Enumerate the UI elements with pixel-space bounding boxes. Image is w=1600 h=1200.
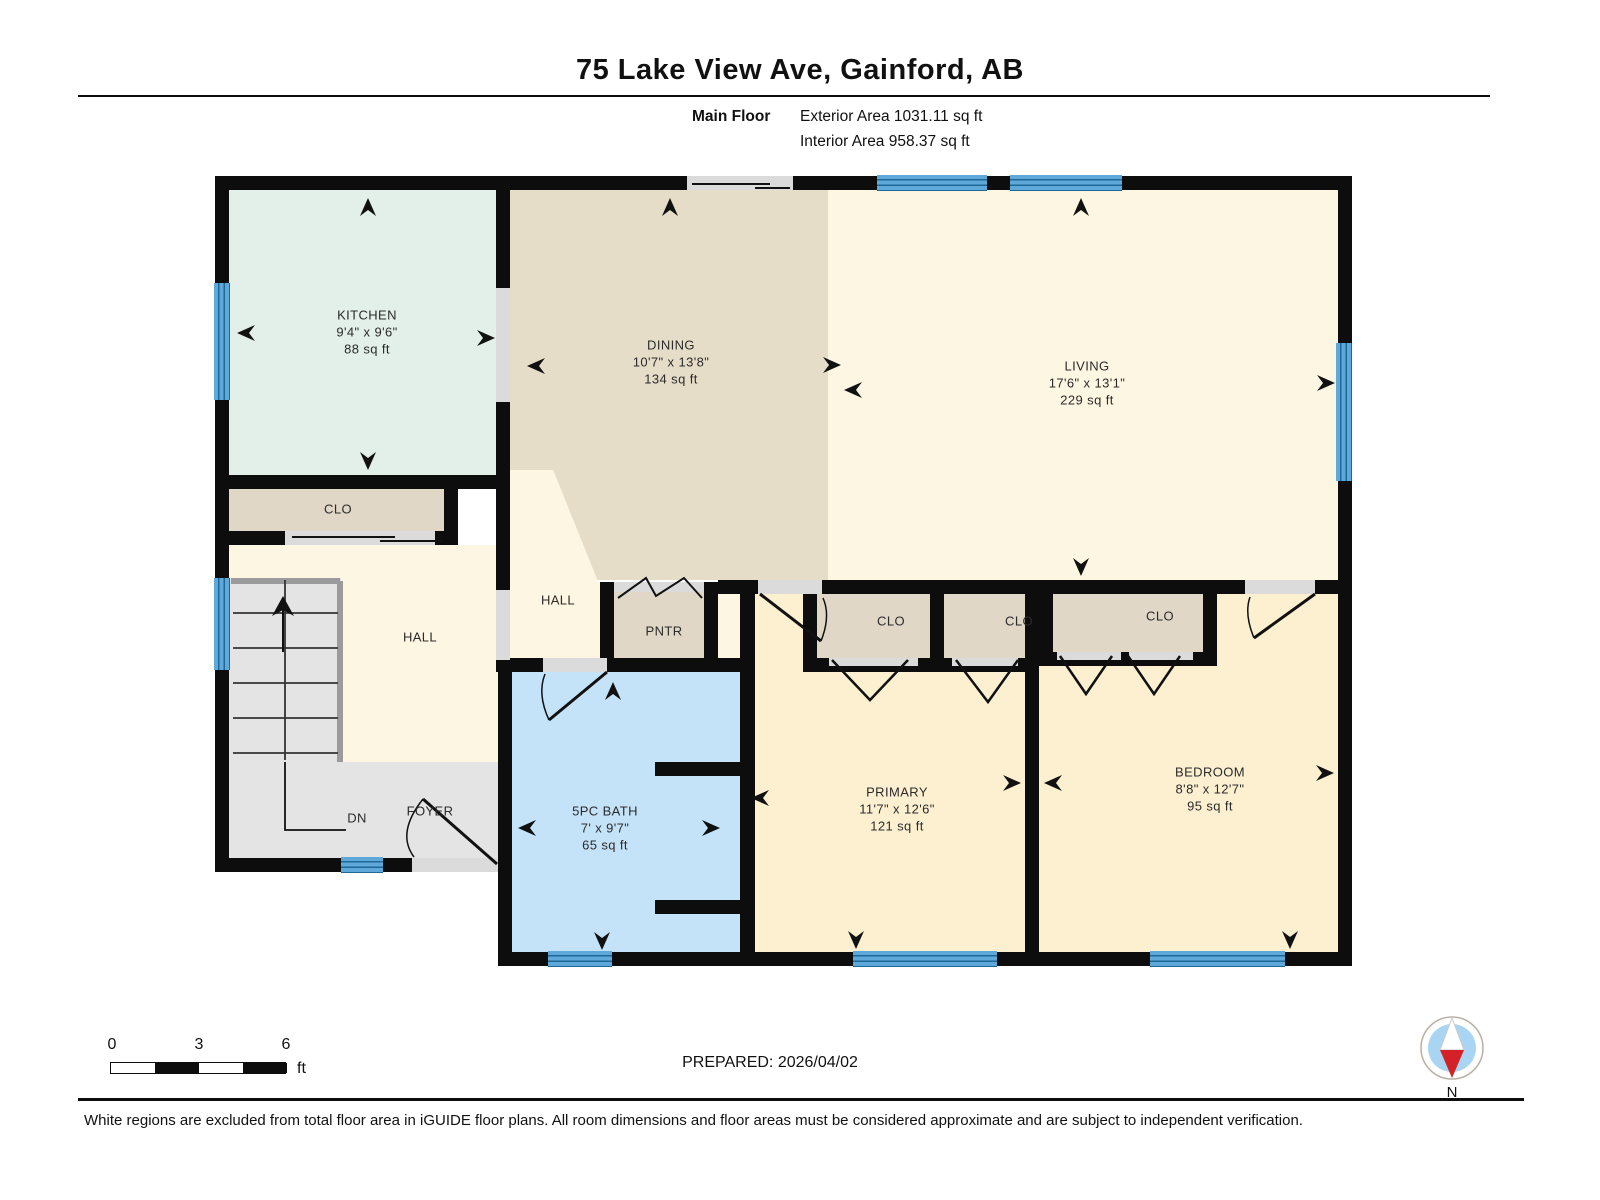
room-area: 65 sq ft xyxy=(572,837,638,854)
label-closet-hall: CLO xyxy=(324,501,352,518)
footer-divider xyxy=(78,1098,1524,1101)
label-bedroom: BEDROOM 8'8" x 12'7" 95 sq ft xyxy=(1175,764,1245,815)
label-living: LIVING 17'6" x 13'1" 229 sq ft xyxy=(1049,358,1126,409)
scale-unit: ft xyxy=(297,1060,306,1078)
room-area: 95 sq ft xyxy=(1175,798,1245,815)
bifold-door-closet xyxy=(1060,656,1112,694)
disclaimer-text: White regions are excluded from total fl… xyxy=(84,1112,1534,1129)
label-dining: DINING 10'7" x 13'8" 134 sq ft xyxy=(633,337,710,388)
bifold-door-closet xyxy=(832,660,908,700)
scale-bar-segment xyxy=(243,1063,287,1073)
stairs-down-path xyxy=(285,762,346,830)
label-hall-mid: HALL xyxy=(541,592,575,609)
room-dims: 7' x 9'7" xyxy=(572,820,638,837)
label-bath: 5PC BATH 7' x 9'7" 65 sq ft xyxy=(572,803,638,854)
scale-bar xyxy=(110,1062,286,1074)
bifold-door-pantry xyxy=(618,578,702,598)
room-area: 121 sq ft xyxy=(859,818,935,835)
scale-bar-segment xyxy=(155,1063,199,1073)
label-closet-primary-2: CLO xyxy=(1005,613,1033,630)
sliding-door-line xyxy=(692,184,790,188)
room-area: 134 sq ft xyxy=(633,371,710,388)
room-area: 88 sq ft xyxy=(336,341,397,358)
sliding-door-line xyxy=(292,537,442,541)
room-name: BEDROOM xyxy=(1175,764,1245,781)
room-area: 229 sq ft xyxy=(1049,392,1126,409)
prepared-date: PREPARED: 2026/04/02 xyxy=(600,1054,940,1072)
scale-tick-6: 6 xyxy=(282,1036,291,1054)
scale-tick-0: 0 xyxy=(108,1036,117,1054)
label-stairs-down: DN xyxy=(347,810,367,827)
door-bath xyxy=(542,672,607,720)
label-kitchen: KITCHEN 9'4" x 9'6" 88 sq ft xyxy=(336,307,397,358)
door-bedroom xyxy=(1248,594,1315,638)
label-foyer: FOYER xyxy=(407,803,454,820)
room-name: DINING xyxy=(633,337,710,354)
floor-plan-page: { "page": { "title": "75 Lake View Ave, … xyxy=(0,0,1600,1200)
room-name: KITCHEN xyxy=(336,307,397,324)
label-primary: PRIMARY 11'7" x 12'6" 121 sq ft xyxy=(859,784,935,835)
label-hall-left: HALL xyxy=(403,629,437,646)
scale-tick-3: 3 xyxy=(195,1036,204,1054)
compass-icon xyxy=(1421,1017,1483,1079)
room-dims: 11'7" x 12'6" xyxy=(859,801,935,818)
room-name: PRIMARY xyxy=(859,784,935,801)
room-dims: 8'8" x 12'7" xyxy=(1175,781,1245,798)
room-name: LIVING xyxy=(1049,358,1126,375)
view-arrows xyxy=(237,198,1335,950)
room-dims: 9'4" x 9'6" xyxy=(336,324,397,341)
label-closet-bedroom: CLO xyxy=(1146,608,1174,625)
room-dims: 10'7" x 13'8" xyxy=(633,354,710,371)
label-closet-primary-1: CLO xyxy=(877,613,905,630)
room-name: 5PC BATH xyxy=(572,803,638,820)
plan-overlay xyxy=(0,0,1600,1200)
stairs xyxy=(231,580,346,830)
room-dims: 17'6" x 13'1" xyxy=(1049,375,1126,392)
label-pantry: PNTR xyxy=(646,623,683,640)
bifold-door-closet xyxy=(1128,656,1180,694)
door-primary xyxy=(760,594,827,641)
bifold-door-closet xyxy=(956,660,1018,702)
